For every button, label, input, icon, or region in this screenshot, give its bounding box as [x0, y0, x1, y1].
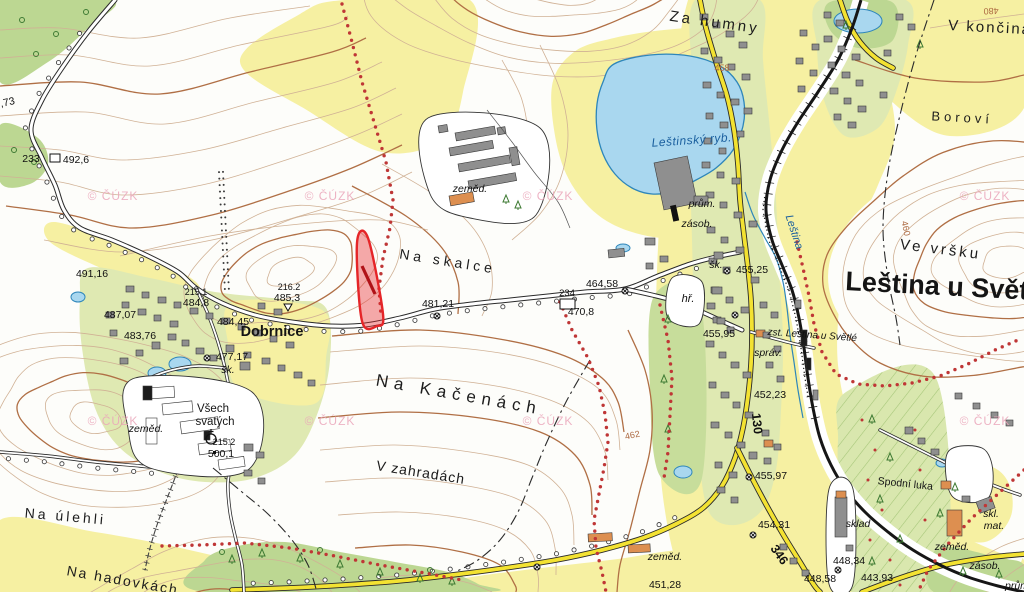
building: [858, 106, 866, 112]
red-dot: [604, 418, 607, 421]
red-dot: [381, 257, 384, 260]
railway-siding: [772, 249, 773, 250]
map-label-k: šk.: [709, 259, 722, 271]
alley-tree-icon: [395, 573, 399, 577]
red-dot: [205, 543, 208, 546]
map-label-sklad: sklad: [846, 518, 872, 530]
building: [835, 497, 847, 537]
alley-tree-icon: [60, 462, 64, 466]
alley-tree-icon: [90, 237, 94, 241]
red-dot: [190, 544, 193, 547]
red-dot: [570, 328, 573, 331]
map-label-485-3: 485,3: [274, 292, 300, 304]
red-dot: [594, 507, 597, 510]
railway-siding: [800, 348, 801, 349]
map-label-455-95: 455,95: [703, 328, 735, 340]
building: [806, 358, 811, 370]
red-dot: [435, 574, 438, 577]
map-label-448-58: 448,58: [804, 573, 836, 585]
red-dot: [994, 348, 997, 351]
boundary-dot: [220, 217, 222, 219]
red-dot: [588, 361, 591, 364]
red-dot: [597, 492, 600, 495]
map-label-448-34: 448,34: [833, 555, 865, 567]
railway-siding: [802, 360, 803, 361]
red-dot: [668, 422, 671, 425]
railway-siding: [765, 225, 766, 226]
boundary-dot: [221, 230, 223, 232]
building: [880, 92, 887, 98]
map-label-215-2: 215.2: [213, 437, 236, 447]
map-label-484-45: 484,45: [217, 316, 249, 328]
red-dot: [363, 89, 366, 92]
red-dot: [828, 363, 831, 366]
red-dot: [369, 561, 372, 564]
red-dot: [379, 272, 382, 275]
railway-siding: [782, 275, 783, 276]
red-dot: [352, 46, 355, 49]
map-label-451-28: 451,28: [649, 579, 681, 591]
building: [798, 86, 805, 92]
alley-tree-icon: [395, 323, 399, 327]
red-dot: [670, 370, 673, 373]
red-dot: [213, 543, 216, 546]
building: [771, 312, 778, 318]
red-dot: [669, 392, 672, 395]
building: [736, 247, 744, 253]
railway-siding: [805, 384, 806, 385]
red-dot: [596, 382, 599, 385]
red-dot: [390, 213, 393, 216]
red-dot: [858, 382, 861, 385]
red-dot: [183, 544, 186, 547]
railway-siding: [785, 282, 786, 283]
red-dot: [361, 82, 364, 85]
alley-tree-icon: [287, 580, 291, 584]
building: [120, 358, 128, 364]
alley-tree-icon: [657, 523, 661, 527]
building: [743, 372, 751, 378]
alley-tree-icon: [694, 266, 698, 270]
red-dot: [594, 537, 597, 540]
railway-siding: [770, 245, 771, 246]
boundary-dot: [225, 236, 227, 238]
red-dot: [593, 522, 596, 525]
red-dot: [258, 543, 261, 546]
red-dot: [953, 368, 956, 371]
red-dot: [919, 585, 922, 588]
alley-tree-icon: [249, 318, 253, 322]
red-dot: [924, 519, 927, 522]
building: [810, 70, 817, 76]
alley-tree-icon: [269, 580, 273, 584]
red-dot: [899, 584, 902, 587]
building: [497, 127, 506, 135]
building: [737, 131, 744, 137]
building: [152, 342, 160, 349]
railway-siding: [778, 264, 779, 265]
boundary-dot: [222, 171, 224, 173]
building: [711, 422, 719, 428]
red-dot: [389, 220, 392, 223]
red-dot: [989, 499, 992, 502]
building: [962, 496, 970, 502]
boundary-dot: [226, 249, 228, 251]
building: [764, 458, 771, 464]
railway-siding: [796, 324, 797, 325]
alley-tree-icon: [554, 552, 558, 556]
red-dot: [390, 191, 393, 194]
building: [286, 342, 294, 348]
red-dot: [160, 544, 163, 547]
red-dot: [925, 378, 928, 381]
alley-tree-icon: [359, 329, 363, 333]
red-dot: [957, 530, 960, 533]
building: [908, 24, 915, 30]
red-dot: [594, 544, 597, 547]
alley-tree-icon: [484, 562, 488, 566]
map-label-h: hř.: [682, 293, 695, 305]
red-dot: [811, 314, 814, 317]
alley-tree-icon: [72, 228, 76, 232]
alley-tree-icon: [624, 535, 628, 539]
red-dot: [663, 474, 666, 477]
red-dot: [354, 53, 357, 56]
red-dot: [995, 494, 998, 497]
red-dot: [376, 132, 379, 135]
red-dot: [367, 104, 370, 107]
red-dot: [339, 555, 342, 558]
building: [905, 427, 913, 434]
building: [660, 256, 668, 262]
building: [174, 302, 181, 308]
building: [256, 452, 264, 458]
boundary-dot: [224, 203, 226, 205]
building: [170, 321, 178, 327]
red-dot: [374, 125, 377, 128]
red-dot: [593, 515, 596, 518]
building: [760, 302, 767, 308]
railway-siding: [803, 368, 804, 369]
red-dot: [1006, 484, 1009, 487]
red-dot: [391, 206, 394, 209]
railway-siding: [763, 214, 764, 215]
building: [154, 315, 161, 321]
red-dot: [280, 545, 283, 548]
red-dot: [591, 368, 594, 371]
building: [308, 380, 315, 386]
boundary-dot: [219, 197, 221, 199]
red-dot: [952, 536, 955, 539]
alley-tree-icon: [590, 544, 594, 548]
map-label-234: 234: [559, 288, 575, 299]
red-dot: [669, 400, 672, 403]
map-canvas[interactable]: Za humnyV končináchBorovíVe vrškuLeština…: [0, 0, 1024, 592]
cuzk-watermark: © ČÚZK: [305, 413, 356, 428]
building: [796, 58, 803, 64]
map-label-484-8: 484,8: [183, 297, 209, 309]
building: [645, 238, 655, 245]
alley-tree-icon: [47, 76, 51, 80]
red-dot: [310, 550, 313, 553]
red-dot: [804, 277, 807, 280]
red-dot: [578, 341, 581, 344]
boundary-dot: [223, 190, 225, 192]
boundary-dot: [226, 242, 228, 244]
building: [731, 99, 739, 105]
red-dot: [359, 75, 362, 78]
red-dot: [602, 470, 605, 473]
railway-siding: [775, 256, 776, 257]
cuzk-watermark: © ČÚZK: [523, 413, 574, 428]
alley-tree-icon: [305, 579, 309, 583]
railway-siding: [793, 309, 794, 310]
boundary-dot: [221, 236, 223, 238]
red-dot: [800, 262, 803, 265]
alley-tree-icon: [501, 305, 505, 309]
building: [742, 74, 750, 80]
building: [749, 221, 757, 227]
map-label-470-8: 470,8: [568, 306, 594, 318]
alley-tree-icon: [304, 327, 308, 331]
red-dot: [384, 161, 387, 164]
cuzk-watermark: © ČÚZK: [305, 188, 356, 203]
alley-tree-icon: [140, 258, 144, 262]
map-label-z-sob: zásob.: [681, 218, 713, 230]
red-dot: [606, 433, 609, 436]
red-dot: [332, 554, 335, 557]
red-dot: [660, 311, 663, 314]
alley-tree-icon: [42, 460, 46, 464]
alley-tree-icon: [537, 554, 541, 558]
topo-map[interactable]: Za humnyV končináchBorovíVe vrškuLeština…: [0, 0, 1024, 592]
cuzk-watermark: © ČÚZK: [523, 188, 574, 203]
alley-tree-icon: [45, 180, 49, 184]
building: [714, 252, 723, 259]
railway-siding: [763, 201, 764, 202]
alley-tree-icon: [77, 31, 81, 35]
building: [729, 472, 737, 478]
red-dot: [457, 578, 460, 581]
building: [588, 533, 612, 542]
red-dot: [918, 379, 921, 382]
alley-tree-icon: [448, 567, 452, 571]
red-dot: [922, 578, 925, 581]
red-dot: [867, 479, 870, 482]
red-dot: [273, 545, 276, 548]
red-dot: [601, 574, 604, 577]
building: [719, 352, 726, 358]
red-dot: [369, 111, 372, 114]
building: [764, 440, 773, 447]
red-dot: [873, 384, 876, 387]
building: [830, 88, 838, 94]
red-dot: [302, 549, 305, 552]
red-dot: [903, 382, 906, 385]
alley-tree-icon: [24, 458, 28, 462]
red-dot: [600, 396, 603, 399]
map-label-z-sob: zásob.: [969, 560, 1001, 572]
map-label-455-25: 455,25: [736, 264, 768, 276]
red-dot: [987, 352, 990, 355]
red-dot: [799, 255, 802, 258]
red-dot: [658, 303, 661, 306]
alley-tree-icon: [341, 577, 345, 581]
red-dot: [383, 250, 386, 253]
alley-tree-icon: [60, 214, 64, 218]
alley-tree-icon: [359, 576, 363, 580]
map-label-215-1: 215.1: [185, 287, 208, 297]
building: [828, 62, 835, 68]
building: [240, 362, 250, 370]
red-dot: [605, 426, 608, 429]
red-dot: [667, 430, 670, 433]
railway-siding: [787, 286, 788, 287]
boundary-dot: [225, 229, 227, 231]
building: [800, 30, 807, 36]
red-dot: [844, 377, 847, 380]
building: [138, 309, 146, 315]
alley-tree-icon: [413, 318, 417, 322]
boundary-dot: [221, 223, 223, 225]
red-dot: [450, 576, 453, 579]
building: [896, 14, 903, 20]
alley-tree-icon: [537, 301, 541, 305]
red-dot: [603, 411, 606, 414]
building: [842, 72, 850, 78]
building: [737, 442, 745, 448]
alley-tree-icon: [447, 311, 451, 315]
alley-tree-icon: [123, 250, 127, 254]
boundary-dot: [227, 275, 229, 277]
alley-tree-icon: [323, 578, 327, 582]
map-label-skl: skl.: [983, 508, 999, 520]
map-label-464-58: 464,58: [586, 278, 618, 290]
red-dot: [361, 560, 364, 563]
building: [836, 491, 846, 498]
alley-tree-icon: [29, 109, 33, 113]
pond: [674, 466, 692, 478]
red-dot: [665, 333, 668, 336]
map-label-pr-m: prům.: [1004, 580, 1024, 592]
red-dot: [383, 564, 386, 567]
building: [717, 92, 724, 98]
building: [262, 358, 270, 364]
map-label-k: šk.: [221, 364, 234, 376]
railway-siding: [801, 352, 802, 353]
railway-siding: [781, 271, 782, 272]
red-dot: [910, 381, 913, 384]
red-dot: [874, 449, 877, 452]
alley-tree-icon: [67, 46, 71, 50]
boundary-dot: [228, 281, 230, 283]
red-dot: [960, 365, 963, 368]
boundary-dot: [222, 249, 224, 251]
building: [824, 12, 831, 18]
red-dot: [665, 459, 668, 462]
alley-tree-icon: [96, 466, 100, 470]
railway-siding: [784, 279, 785, 280]
map-label-477-17: 477,17: [216, 351, 248, 363]
map-label-pr-m: prům.: [688, 198, 716, 210]
red-dot: [405, 568, 408, 571]
railway-siding: [764, 197, 765, 198]
building: [732, 178, 740, 184]
red-dot: [805, 284, 808, 287]
red-dot: [596, 500, 599, 503]
red-dot: [220, 542, 223, 545]
map-label-svat-ch: svatých: [196, 416, 235, 428]
building: [931, 449, 939, 455]
building: [717, 172, 724, 178]
red-dot: [228, 542, 231, 545]
cuzk-watermark: © ČÚZK: [88, 413, 139, 428]
building: [836, 20, 844, 26]
red-dot: [1007, 342, 1010, 345]
alley-tree-icon: [322, 329, 326, 333]
building: [744, 108, 752, 114]
map-label-483-76: 483,76: [124, 330, 156, 342]
red-dot: [389, 183, 392, 186]
red-dot: [398, 567, 401, 570]
red-dot: [600, 478, 603, 481]
red-dot: [344, 17, 347, 20]
red-dot: [802, 270, 805, 273]
alley-tree-icon: [107, 243, 111, 247]
railway-siding: [769, 242, 770, 243]
building: [158, 297, 166, 303]
alley-tree-icon: [644, 285, 648, 289]
map-label-487-07: 487,07: [104, 309, 136, 321]
alley-tree-icon: [251, 581, 255, 585]
alley-tree-icon: [132, 469, 136, 473]
building: [717, 487, 725, 493]
red-dot: [978, 509, 981, 512]
building: [813, 390, 818, 400]
red-dot: [866, 383, 869, 386]
red-dot: [807, 292, 810, 295]
red-dot: [385, 243, 388, 246]
building: [774, 444, 781, 450]
red-dot: [606, 441, 609, 444]
boundary-dot: [223, 184, 225, 186]
railway-siding: [762, 209, 763, 210]
building: [715, 462, 722, 468]
boundary-dot: [222, 243, 224, 245]
alley-tree-icon: [640, 530, 644, 534]
red-dot: [668, 415, 671, 418]
railway-siding: [799, 340, 800, 341]
red-dot: [1001, 345, 1004, 348]
boundary-dot: [224, 216, 226, 218]
building: [278, 365, 285, 371]
red-dot: [386, 235, 389, 238]
building: [703, 82, 711, 88]
red-dot: [413, 569, 416, 572]
red-dot: [1014, 339, 1017, 342]
boundary-dot: [224, 210, 226, 212]
map-label-455-97: 455,97: [755, 470, 787, 482]
boundary-dot: [219, 184, 221, 186]
boundary-dot: [227, 268, 229, 270]
map-label-dobrnice: Dobrnice: [241, 324, 304, 340]
boundary-dot: [223, 268, 225, 270]
building: [955, 393, 962, 399]
red-dot: [250, 542, 253, 545]
building: [719, 148, 726, 154]
railway-siding: [768, 237, 769, 238]
railway-siding: [790, 297, 791, 298]
